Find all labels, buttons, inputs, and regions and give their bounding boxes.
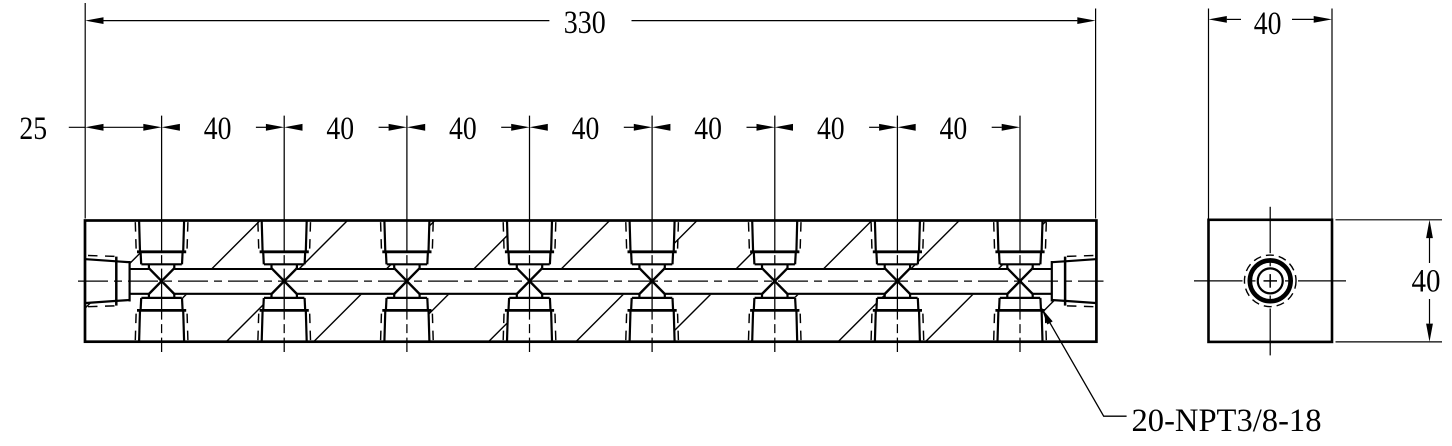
svg-text:40: 40 <box>326 111 354 147</box>
svg-text:25: 25 <box>19 111 47 147</box>
svg-text:330: 330 <box>564 5 606 41</box>
svg-text:40: 40 <box>940 111 968 147</box>
svg-text:20-NPT3/8-18: 20-NPT3/8-18 <box>1132 403 1322 439</box>
svg-text:40: 40 <box>204 111 232 147</box>
svg-text:40: 40 <box>817 111 845 147</box>
svg-text:40: 40 <box>694 111 722 147</box>
svg-text:40: 40 <box>572 111 600 147</box>
svg-text:40: 40 <box>1254 6 1282 42</box>
svg-text:40: 40 <box>449 111 477 147</box>
svg-text:40: 40 <box>1412 264 1441 300</box>
